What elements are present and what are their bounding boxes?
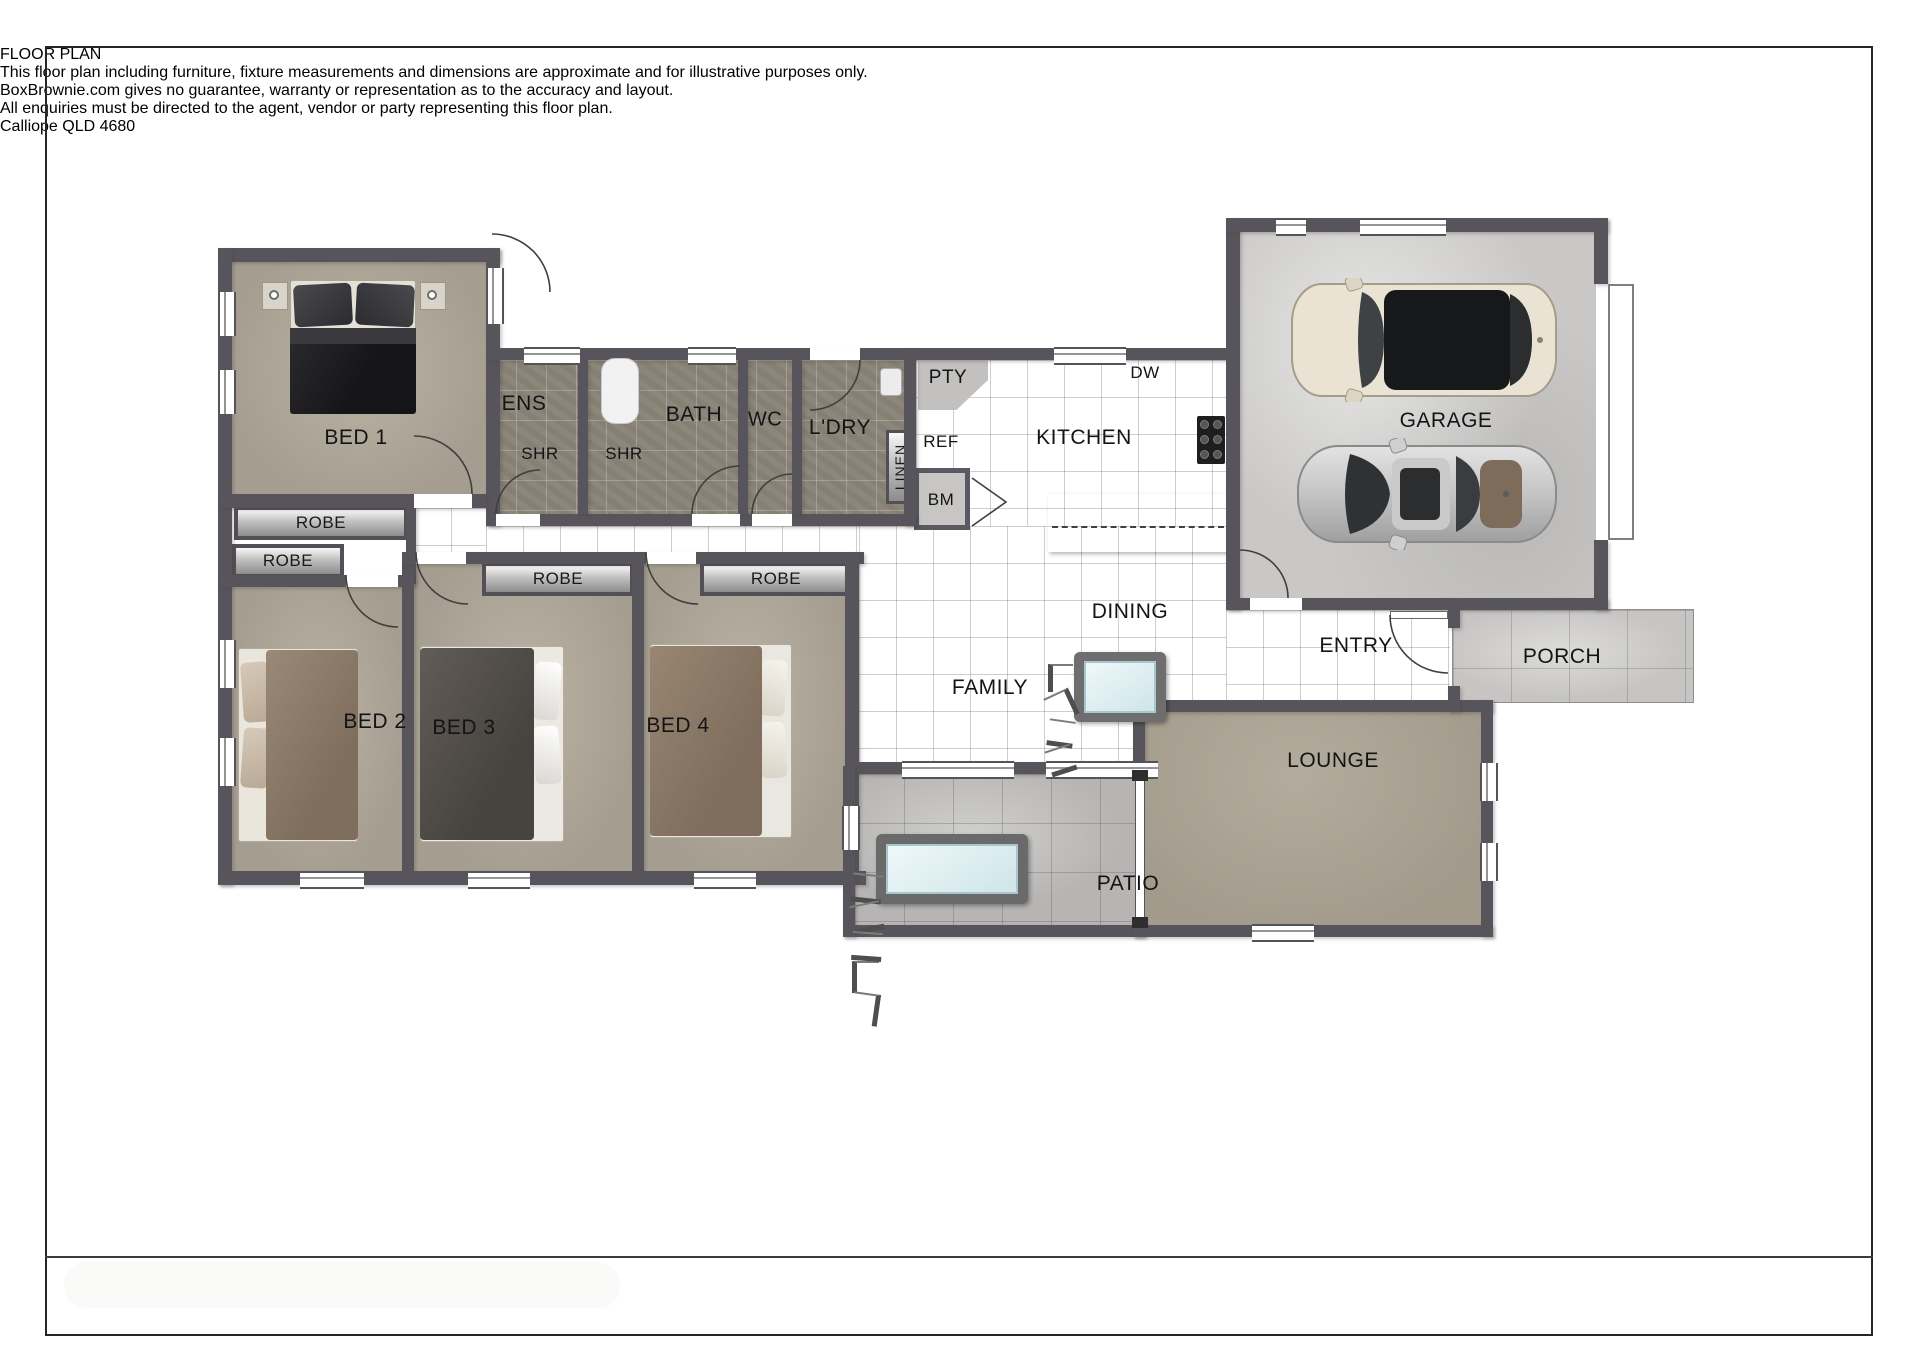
- room-label-family: FAMILY: [952, 676, 1028, 700]
- room-label-lounge: LOUNGE: [1287, 749, 1379, 773]
- room-label-bed1: BED 1: [324, 426, 387, 450]
- room-label-patio: PATIO: [1097, 872, 1159, 896]
- door-arc-icon: [414, 436, 472, 494]
- room-label-wc: WC: [748, 409, 782, 432]
- room-label-bm: BM: [928, 490, 955, 510]
- room-label-garage: GARAGE: [1400, 409, 1493, 433]
- door-arc-icon: [1240, 550, 1288, 598]
- room-label-ldry: L'DRY: [809, 416, 871, 440]
- room-label-kitchen: KITCHEN: [1036, 426, 1132, 450]
- floor-plan-canvas: ROBE ROBE ROBE ROBE LINEN: [0, 0, 1920, 1357]
- door-arc-icon: [752, 474, 792, 514]
- footer-separator: [45, 1256, 1873, 1258]
- room-label-bed4: BED 4: [646, 714, 709, 738]
- door-arc-icon: [810, 360, 860, 410]
- door-arc-icon: [346, 575, 398, 627]
- door-arc-icon: [496, 470, 540, 514]
- room-label-pty: PTY: [929, 367, 967, 389]
- room-label-ens: ENS: [502, 392, 547, 416]
- room-label-bed2: BED 2: [343, 710, 406, 734]
- footer-watermark: [64, 1262, 620, 1308]
- door-arc-icon: [492, 234, 550, 292]
- cupboard-door-icon: [972, 478, 1006, 526]
- door-arc-icon: [416, 552, 468, 604]
- door-arc-icon: [646, 552, 698, 604]
- room-label-bed3: BED 3: [432, 716, 495, 740]
- room-label-entry: ENTRY: [1319, 634, 1392, 658]
- room-label-dining: DINING: [1092, 600, 1169, 624]
- room-label-dw: DW: [1130, 363, 1159, 383]
- room-label-porch: PORCH: [1523, 645, 1601, 669]
- room-label-bath: BATH: [666, 403, 722, 427]
- door-arc-icon: [692, 466, 740, 514]
- room-label-ref: REF: [923, 432, 959, 452]
- door-arc-icon: [1390, 615, 1448, 673]
